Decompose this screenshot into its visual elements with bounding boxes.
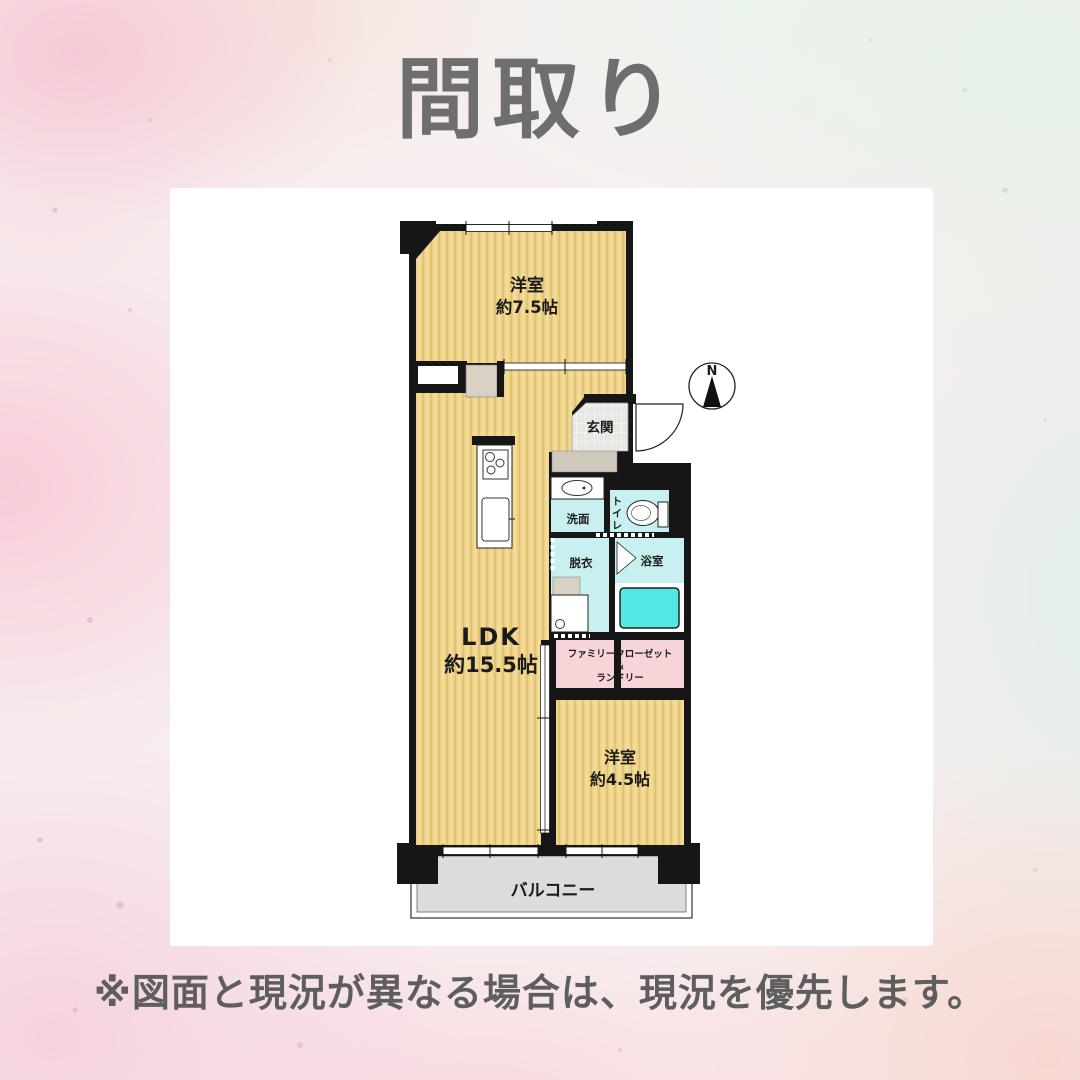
washing-machine [551,595,588,632]
svg-text:＆: ＆ [615,661,625,672]
label-ldk-name: LDK [461,623,521,651]
label-ldk-size: 約15.5帖 [444,653,538,677]
svg-text:ト: ト [612,496,622,508]
toilet-tank [658,502,668,527]
label-washroom: 洗面 [567,512,590,526]
room-bedroom1-floor [416,231,626,363]
vanity [551,477,604,499]
laundry-pan [553,577,580,595]
closet-inset [418,366,458,384]
vanity-basin [562,481,592,496]
kitchen-counter [472,436,515,548]
entrance-door-stub [628,394,636,404]
pillar-bottom-left [397,843,438,884]
label-entrance: 玄関 [587,419,614,436]
entrance-step [552,451,617,472]
label-bedroom1-name: 洋室 [510,275,544,296]
svg-text:ランドリー: ランドリー [596,673,644,684]
toilet-fixture [627,501,668,528]
label-bedroom2-size: 約4.5帖 [590,770,650,789]
label-balcony: バルコニー [511,881,596,901]
svg-text:レ: レ [612,521,622,532]
pillar-bottom-right [658,843,700,884]
entrance-door-arc [636,404,683,451]
vanity-faucet [583,487,586,490]
floorplan-svg: N 洋室 約7.5帖 LDK 約15.5帖 玄関 洗面 ト イ レ 脱衣 浴室 … [170,188,933,946]
page-title: 間取り [0,56,1080,144]
compass: N [689,363,735,409]
bathtub [620,588,679,628]
label-dressing: 脱衣 [570,556,593,570]
disclaimer-text: ※図面と現況が異なる場合は、現況を優先します。 [0,962,1080,1017]
label-bath: 浴室 [641,554,664,568]
svg-text:イ: イ [612,508,622,520]
wall-stub [497,361,504,397]
label-bedroom2-name: 洋室 [604,748,636,767]
label-toilet: ト イ レ [612,496,622,532]
svg-text:ファミリークローゼット: ファミリークローゼット [568,648,673,660]
floorplan-card: N 洋室 約7.5帖 LDK 約15.5帖 玄関 洗面 ト イ レ 脱衣 浴室 … [170,188,933,946]
kitchen-sink [482,498,509,541]
label-bedroom1-size: 約7.5帖 [496,297,559,317]
storage-box [466,365,497,397]
entrance-top-wall [584,394,628,403]
